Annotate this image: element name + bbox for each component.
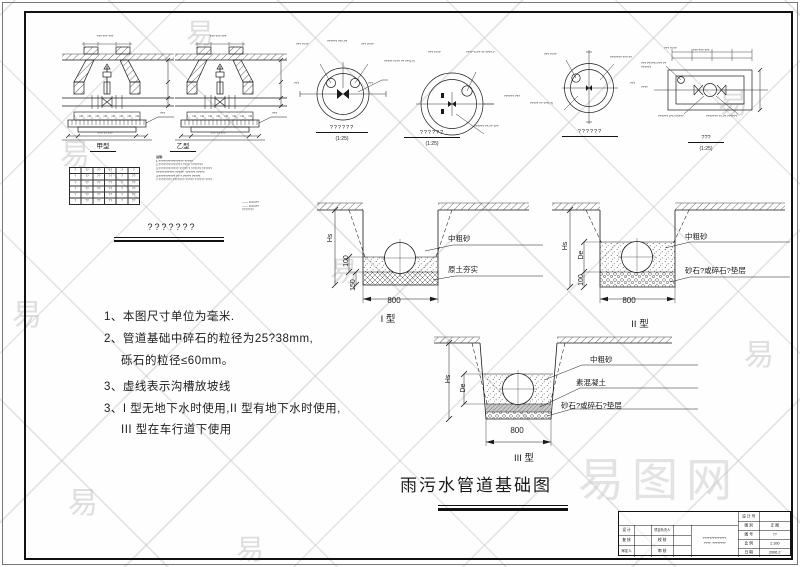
tb-sheet-type-value: 正 图 [759, 521, 790, 530]
plan1-annotation: ??? [294, 82, 306, 86]
tb-approver-label: 审定人 [619, 545, 634, 557]
plan2-scale: (1:25) [404, 142, 460, 148]
trench1-dim-hs: Hs [327, 227, 335, 249]
trench2-dim-800: 800 [613, 296, 645, 305]
material-table-cell: ?? [81, 198, 93, 204]
well-a-caption: 甲型 [90, 143, 116, 152]
trench1-label-soil: 原土夯实 [448, 266, 478, 275]
plan4-caption: ??? [688, 135, 724, 143]
material-table: ????????????????????????????????????????… [69, 167, 140, 205]
tb-design-no-label: 设 计 号 [738, 512, 759, 521]
trench3-dim-800: 800 [501, 426, 533, 435]
plan3-annotation: ????? ?? ???(-?) [530, 102, 560, 106]
plan-circle3-drawing [556, 48, 622, 140]
well-note-line: ? ????????.???????·????? ?????? ????. [156, 179, 282, 183]
plan1-scale: (1:25) [316, 137, 368, 143]
plan1-annotation: ????? ?=?? ?? ???(-?) [384, 60, 416, 64]
tb-scale-value: 1:100 [759, 539, 790, 548]
trench2-caption: II 型 [608, 320, 672, 331]
trench1-label-sand: 中粗砂 [448, 235, 471, 244]
tb-auditor-label: 审 核 [651, 545, 673, 557]
well-section-b-drawing [175, 42, 290, 142]
tb-checker-value [634, 535, 651, 545]
drawing-sheet: 易 易 易 易 易 易 易 易 易图网 [0, 0, 800, 567]
tb-project-line2: ????, ???????? [704, 541, 726, 546]
trench2-dim-100: 100 [578, 269, 586, 291]
plan4-annotation: ??????? ??-?? ?????? [706, 115, 750, 119]
legend-line: ??????? [242, 209, 302, 213]
well-a-bottom-dim-label: ??? ?? ??? [83, 132, 127, 136]
plan2-annotation: ???? ?=?? ?? ????-? [466, 51, 496, 55]
well-section-a-drawing [62, 42, 177, 142]
well-notes-block: 说明: 1.??????????????? ?????. 2.?????????… [156, 156, 282, 182]
plan-rect4-drawing [654, 44, 772, 126]
plan4-top-dims: ??? ??? ??? [676, 49, 726, 53]
tb-designer-value [634, 525, 651, 535]
well-legend: —— 0.2m?? —— 0.2m?? ??????? [242, 201, 302, 212]
well-a-top-dim-label: ??? ??? ??? [83, 35, 127, 39]
plan4-annotation: ??? ?????×??? ?? ?????? [641, 62, 671, 70]
drawing-title: 雨污水管道基础图 [400, 476, 552, 496]
tb-proof-value [673, 535, 691, 545]
tb-sheet-no-label: 图 号 [738, 530, 759, 539]
tb-pm-value [673, 525, 691, 535]
well-b-bottom-dim-label: ??? ?? ??? [196, 132, 240, 136]
trench3-dim-hs: Hs [445, 368, 453, 390]
topleft-group-title: ??????? [120, 222, 224, 232]
well-a-leader-label: ??? [160, 112, 165, 116]
plan3-caption: ?????? [562, 129, 618, 137]
well-b-caption: 乙型 [170, 143, 196, 152]
tb-approver-value [634, 545, 651, 557]
well-b-leader-label: ??? [272, 112, 277, 116]
note-line-4: 3、虚线表示沟槽放坡线 [104, 381, 231, 394]
tb-project-block: ??????????????, ????, ???????? [691, 525, 738, 557]
plan4-annotation: ???? [641, 86, 657, 90]
trench1-dim-100: 100 [343, 250, 351, 272]
title-underline-thin [438, 505, 568, 506]
trench3-label-cushion: 砂石?或碎石?垫层 [561, 402, 622, 411]
trench-type2-drawing [550, 200, 793, 332]
title-underline-thick [438, 508, 568, 511]
trench3-label-sand: 中粗砂 [590, 356, 613, 365]
tb-date-label: 日 期 [738, 548, 759, 557]
tb-design-no-value [759, 512, 790, 521]
trench1-dim-800: 800 [378, 296, 410, 305]
note-line-2: 2、管道基础中碎石的粒径为25?38mm, [104, 333, 313, 346]
plan3-annotation: ??????? ???-?? [610, 56, 640, 60]
plan2-caption: ?????? [404, 130, 460, 138]
well-b-top-dim-label: ??? ??? ??? [196, 35, 240, 39]
trench3-dim-de: De [460, 377, 468, 399]
plan1-annotation: ??? [368, 82, 380, 86]
trench2-dim-hs: Hs [562, 235, 570, 257]
plan1-annotation: ??? ?=?? [361, 43, 383, 47]
plan3-annotation: ??? ?=?? [544, 53, 566, 57]
tb-auditor-value [673, 545, 691, 557]
trench1-dim-150: 150 [350, 274, 358, 296]
material-table-cell: ? [70, 198, 82, 204]
trench2-dim-de: De [578, 244, 586, 266]
plan1-caption: ?????? [316, 125, 368, 133]
note-line-3: 砾石的粒径≤60mm。 [121, 355, 234, 368]
tb-proof-label: 校 核 [651, 535, 673, 545]
title-block: 设 计 号 图 别 正 图 图 号 ?? 比 例 1:100 日 期 2006.… [618, 511, 791, 556]
trench2-label-cushion: 砂石?或碎石?垫层 [685, 267, 746, 276]
topleft-group-underline-thick [114, 240, 224, 242]
tb-sheet-type-label: 图 别 [738, 521, 759, 530]
plan2-annotation: ??? ?=?? [428, 51, 450, 55]
trench3-caption: III 型 [486, 454, 562, 465]
tb-pm-label: 项目负责人 [651, 525, 673, 535]
plan2-annotation: ?????? ??? [504, 95, 534, 99]
plan1-annotation: ?????? ???-?? [327, 40, 353, 44]
plan4-annotation: ?????? (??-??)??? [658, 115, 698, 119]
note-line-1: 1、本图尺寸单位为毫米. [104, 311, 235, 324]
topleft-group-underline-thin [114, 237, 224, 238]
material-table-cell: ?? [104, 198, 116, 204]
tb-designer-label: 设 计 [619, 525, 634, 535]
plan2-annotation: ?????? ??-?? ??? [474, 125, 508, 129]
note-line-6: III 型在车行道下使用 [121, 424, 232, 437]
plan4-scale: (1:25) [688, 147, 724, 153]
tb-scale-label: 比 例 [738, 539, 759, 548]
tb-checker-label: 复 核 [619, 535, 634, 545]
material-table-cell: ? [116, 198, 128, 204]
tb-sheet-no-value: ?? [759, 530, 790, 539]
material-table-cell: ?? [93, 198, 105, 204]
trench1-caption: I 型 [362, 315, 414, 326]
material-table-cell: ?? [128, 198, 140, 204]
tb-date-value: 2006.2 [759, 548, 790, 557]
trench3-label-concrete: 素混凝土 [576, 379, 606, 388]
plan1-annotation: ??? ?=?? [296, 43, 318, 47]
trench2-label-sand: 中粗砂 [685, 233, 708, 242]
note-line-5: 3、I 型无地下水时使用,II 型有地下水时使用, [104, 403, 341, 416]
